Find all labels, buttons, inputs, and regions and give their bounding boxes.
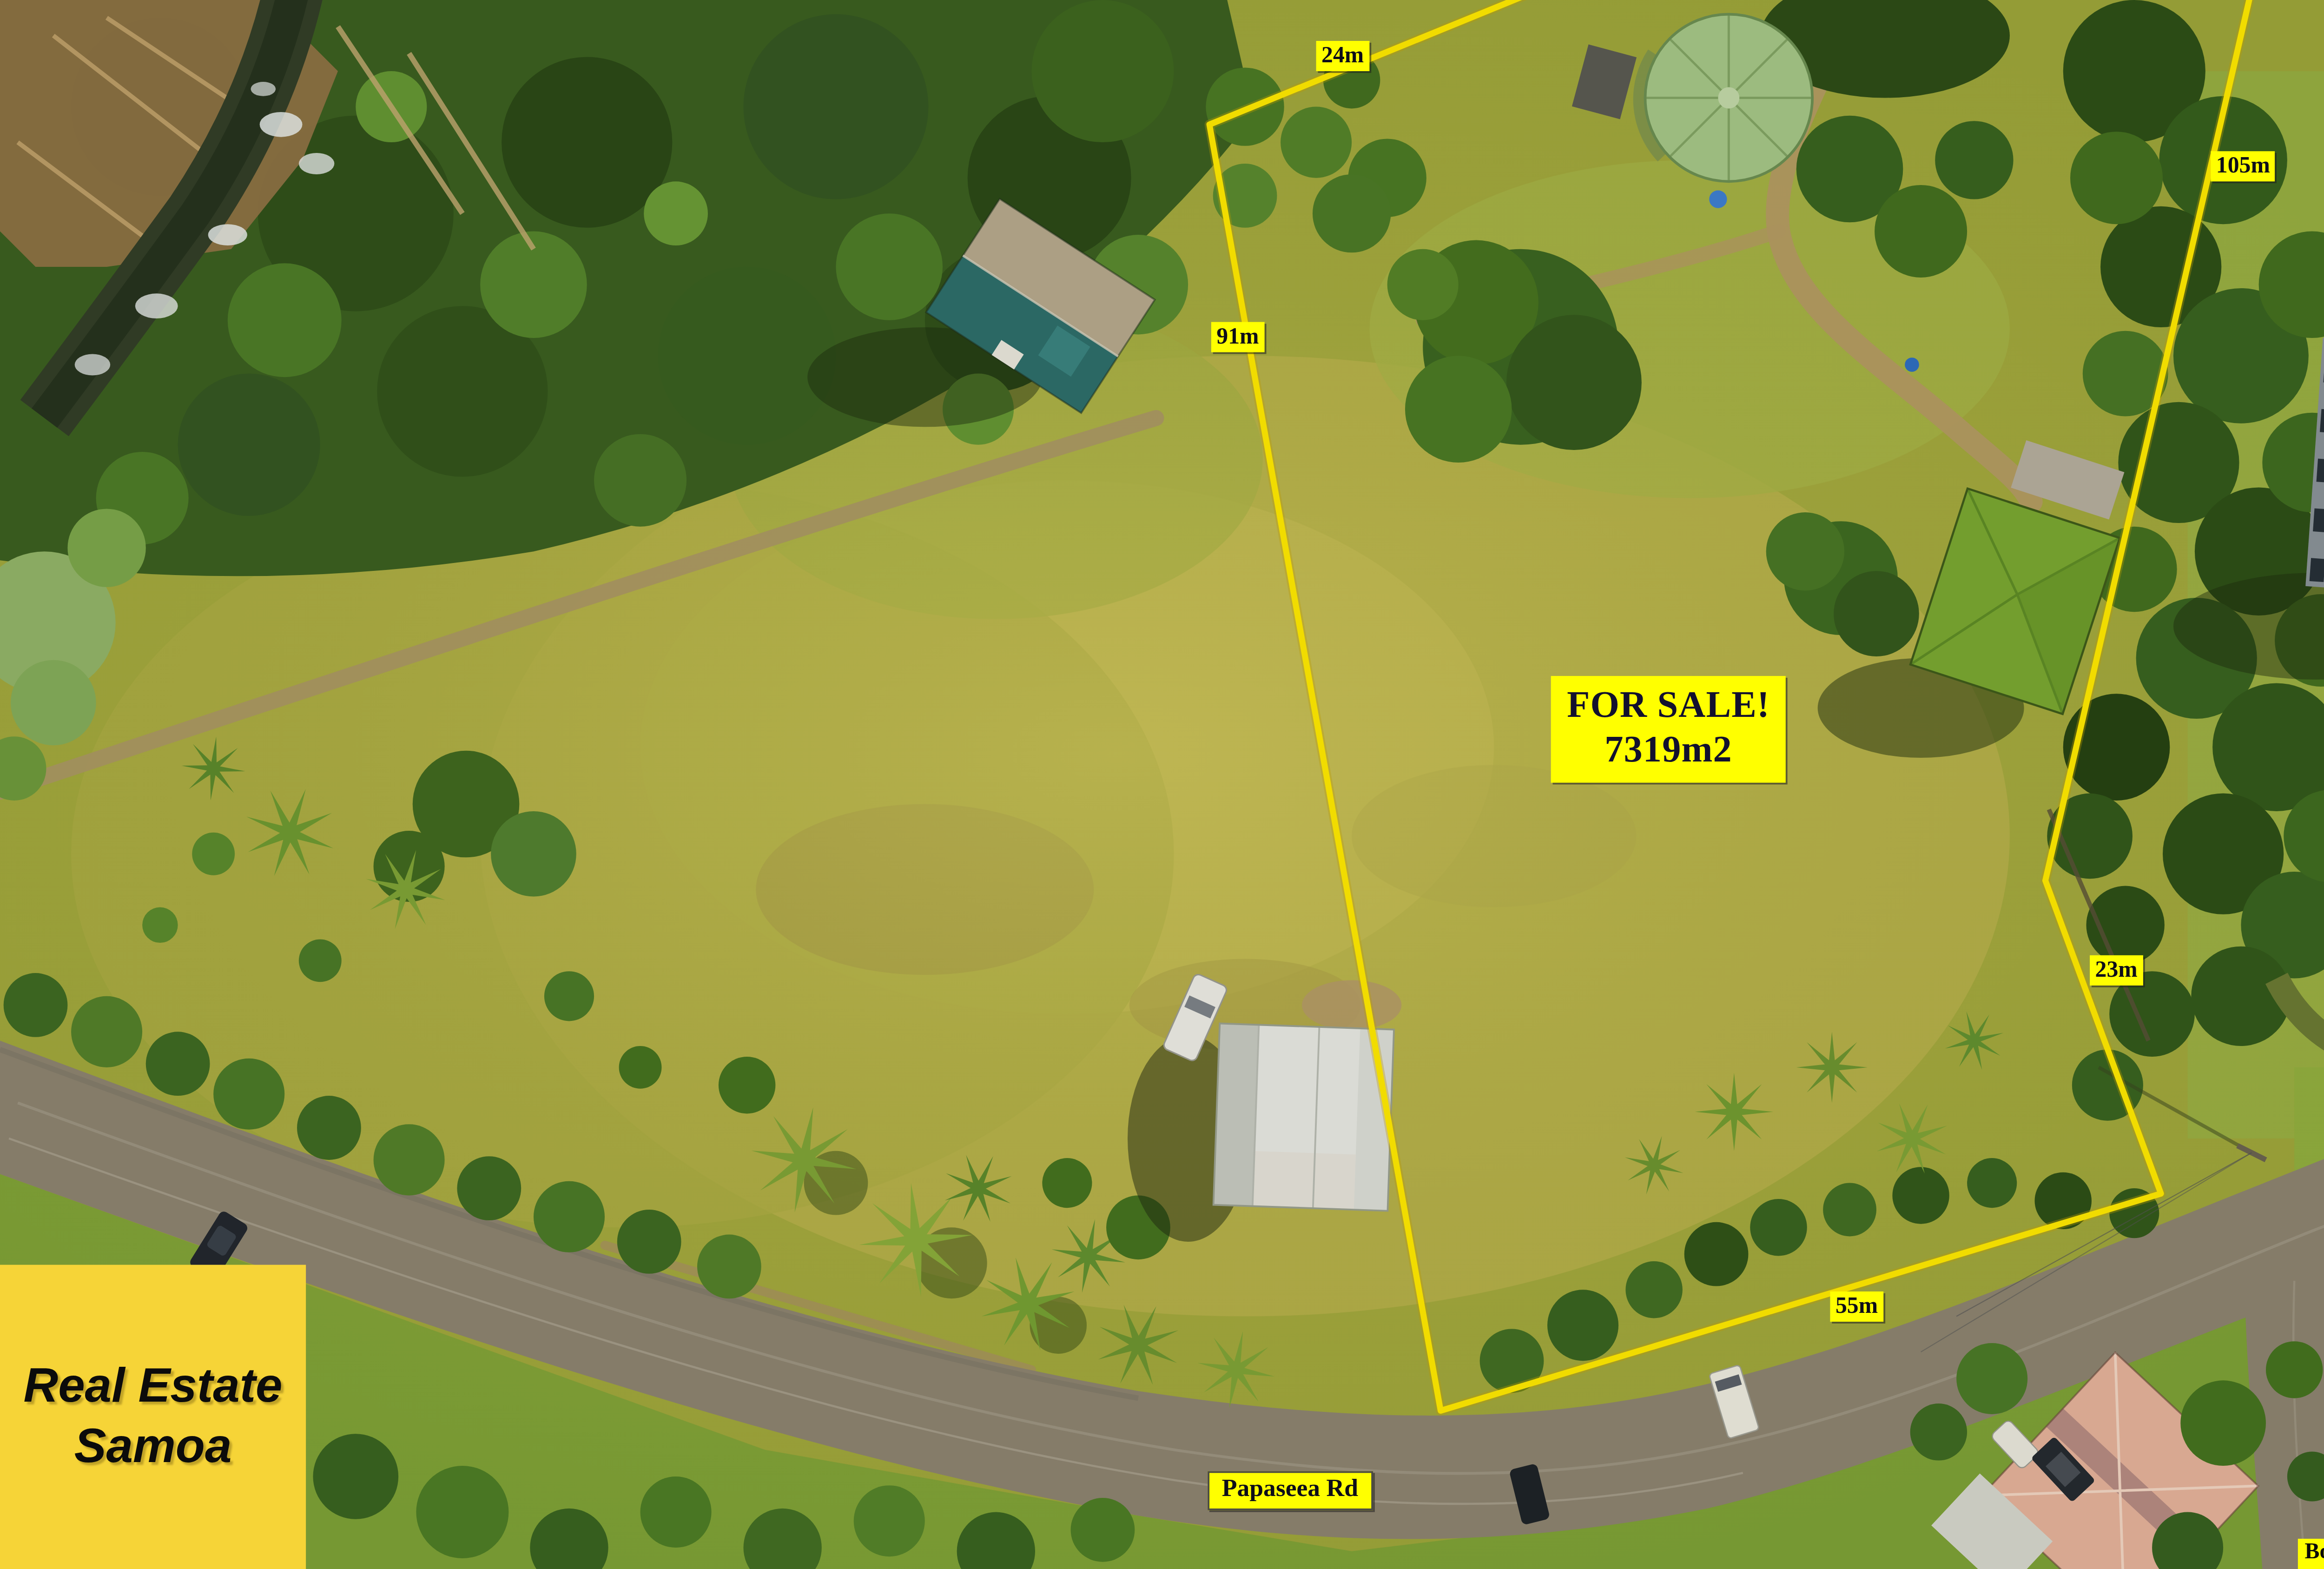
aerial-scene: [0, 0, 2324, 1569]
disclaimer-banner: Boundary Lines are only for illustration…: [2298, 1539, 2324, 1569]
boundary-measurement-23m: 23m: [2090, 955, 2143, 985]
boundary-measurement-24m: 24m: [1316, 41, 1369, 71]
for-sale-line1: FOR SALE!: [1567, 683, 1770, 728]
boundary-measurement-91m: 91m: [1211, 322, 1264, 352]
photo-grain: [0, 0, 2324, 1569]
road-name-label: Papaseea Rd: [1208, 1471, 1372, 1510]
realtor-logo: Real Estate Samoa: [0, 1265, 306, 1569]
aerial-listing-photo: 24m 91m 105m 23m 55m FOR SALE! 7319m2 Pa…: [0, 0, 2324, 1569]
boundary-measurement-105m: 105m: [2211, 151, 2275, 181]
logo-line2: Samoa: [74, 1417, 232, 1477]
logo-line1: Real Estate: [24, 1357, 283, 1417]
for-sale-area: 7319m2: [1567, 728, 1770, 773]
for-sale-label: FOR SALE! 7319m2: [1551, 676, 1786, 783]
boundary-measurement-55m: 55m: [1830, 1291, 1883, 1321]
